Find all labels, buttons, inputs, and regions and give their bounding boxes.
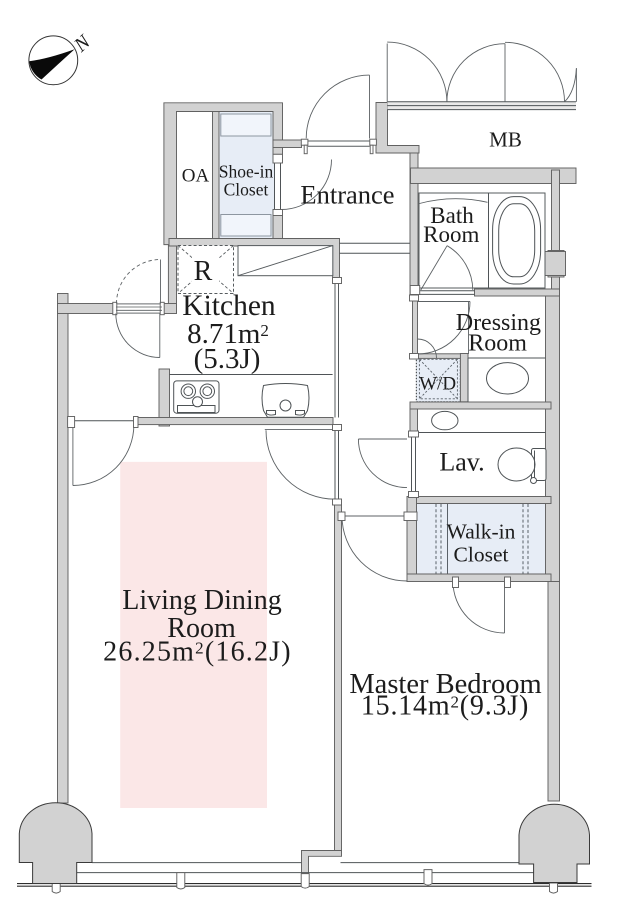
- svg-text:R: R: [194, 256, 213, 287]
- svg-text:Living Dining: Living Dining: [122, 585, 281, 616]
- svg-text:(5.3J): (5.3J): [194, 343, 261, 375]
- svg-text:Room: Room: [468, 331, 527, 357]
- svg-text:Closet: Closet: [224, 179, 269, 199]
- svg-text:Room: Room: [423, 222, 479, 247]
- svg-text:Lav.: Lav.: [439, 448, 484, 477]
- svg-text:W/D: W/D: [419, 374, 456, 395]
- svg-text:15.14m2(9.3J): 15.14m2(9.3J): [361, 691, 529, 722]
- svg-text:Entrance: Entrance: [300, 180, 394, 210]
- svg-text:OA: OA: [182, 166, 210, 187]
- svg-text:MB: MB: [489, 128, 522, 152]
- svg-text:Closet: Closet: [454, 543, 509, 567]
- svg-text:Walk-in: Walk-in: [447, 520, 516, 544]
